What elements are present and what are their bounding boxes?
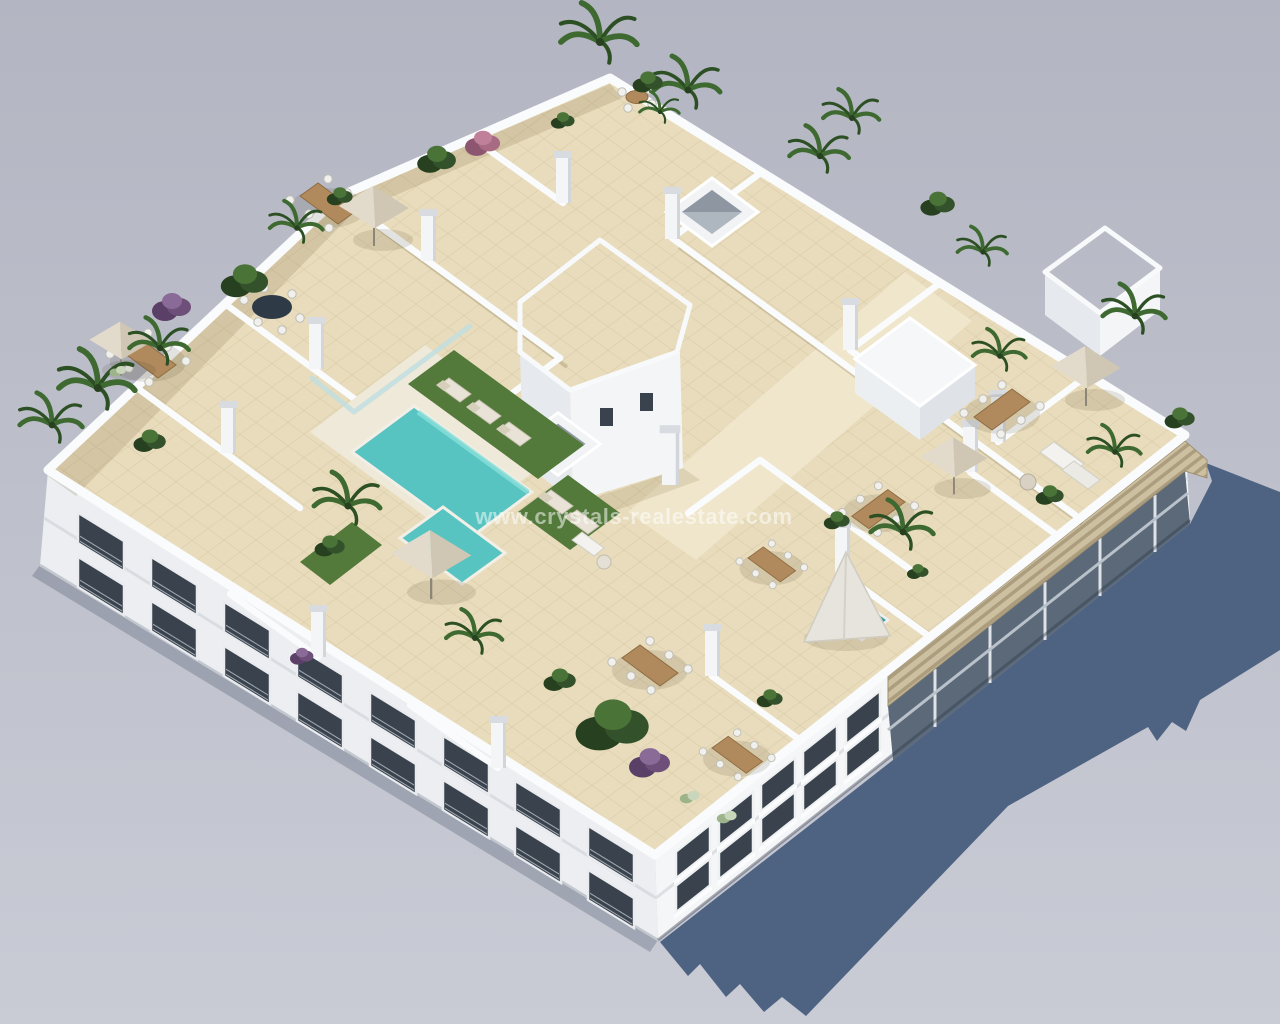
watermark-text: www.crystals-realestate.com bbox=[474, 504, 792, 529]
stair-core-window bbox=[640, 393, 653, 411]
stair-core-window bbox=[600, 408, 613, 426]
render-image: www.crystals-realestate.com bbox=[0, 0, 1280, 1024]
render-canvas: www.crystals-realestate.com bbox=[0, 0, 1280, 1024]
